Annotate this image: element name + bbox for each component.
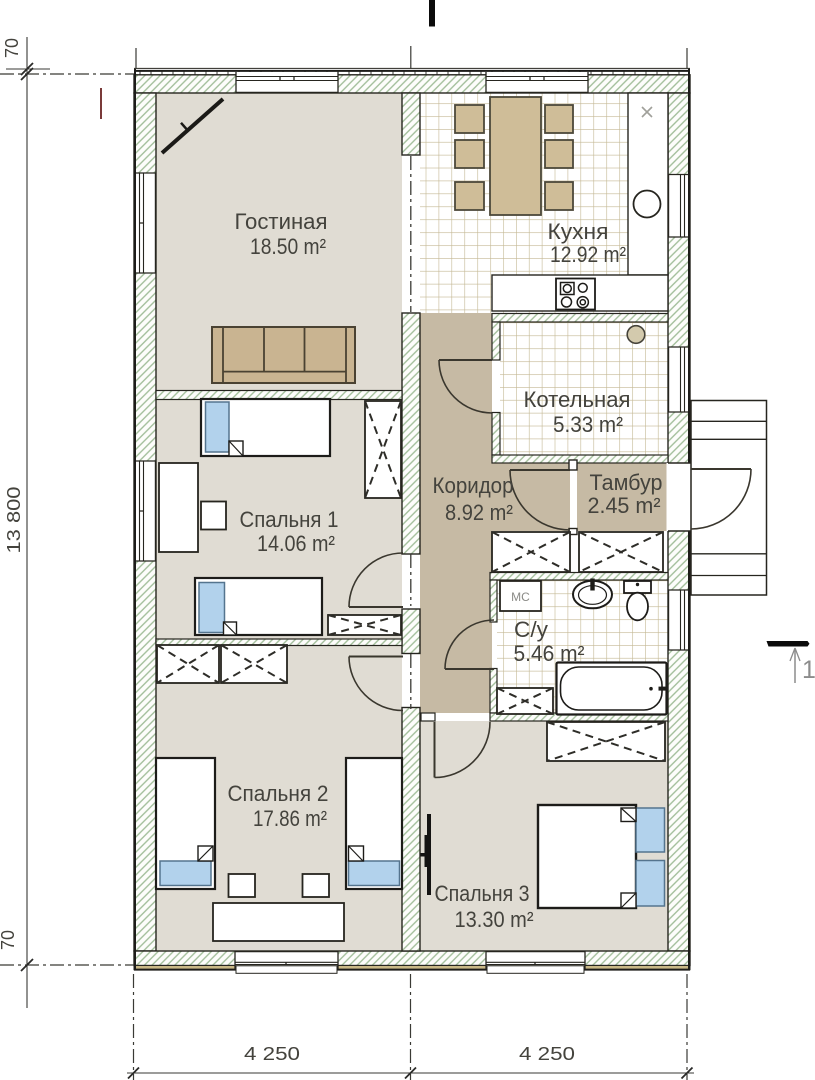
- svg-text:Спальня 1: Спальня 1: [240, 507, 339, 532]
- svg-text:70: 70: [0, 930, 18, 950]
- svg-text:4 250: 4 250: [244, 1044, 300, 1064]
- svg-text:18.50 m²: 18.50 m²: [250, 234, 326, 259]
- svg-text:Котельная: Котельная: [524, 387, 631, 412]
- svg-text:Коридор: Коридор: [433, 473, 514, 498]
- svg-text:МС: МС: [511, 590, 530, 604]
- svg-text:5.33 m²: 5.33 m²: [553, 412, 623, 437]
- svg-text:Кухня: Кухня: [548, 219, 609, 244]
- svg-text:14.06 m²: 14.06 m²: [257, 531, 335, 556]
- svg-text:Гостиная: Гостиная: [235, 209, 328, 234]
- svg-text:Спальня 3: Спальня 3: [435, 881, 530, 906]
- svg-text:5.46 m²: 5.46 m²: [514, 641, 585, 666]
- svg-text:13.30 m²: 13.30 m²: [455, 907, 534, 932]
- svg-text:4 250: 4 250: [519, 1044, 575, 1064]
- svg-text:70: 70: [2, 38, 22, 58]
- svg-text:2.45 m²: 2.45 m²: [588, 493, 661, 518]
- svg-text:13 800: 13 800: [4, 487, 24, 554]
- svg-text:1: 1: [802, 656, 815, 684]
- svg-text:Тамбур: Тамбур: [590, 470, 663, 495]
- svg-text:17.86 m²: 17.86 m²: [253, 806, 327, 831]
- svg-text:12.92 m²: 12.92 m²: [550, 242, 626, 267]
- svg-text:8.92 m²: 8.92 m²: [445, 500, 513, 525]
- svg-text:Спальня 2: Спальня 2: [228, 781, 329, 806]
- svg-text:С/у: С/у: [514, 617, 548, 642]
